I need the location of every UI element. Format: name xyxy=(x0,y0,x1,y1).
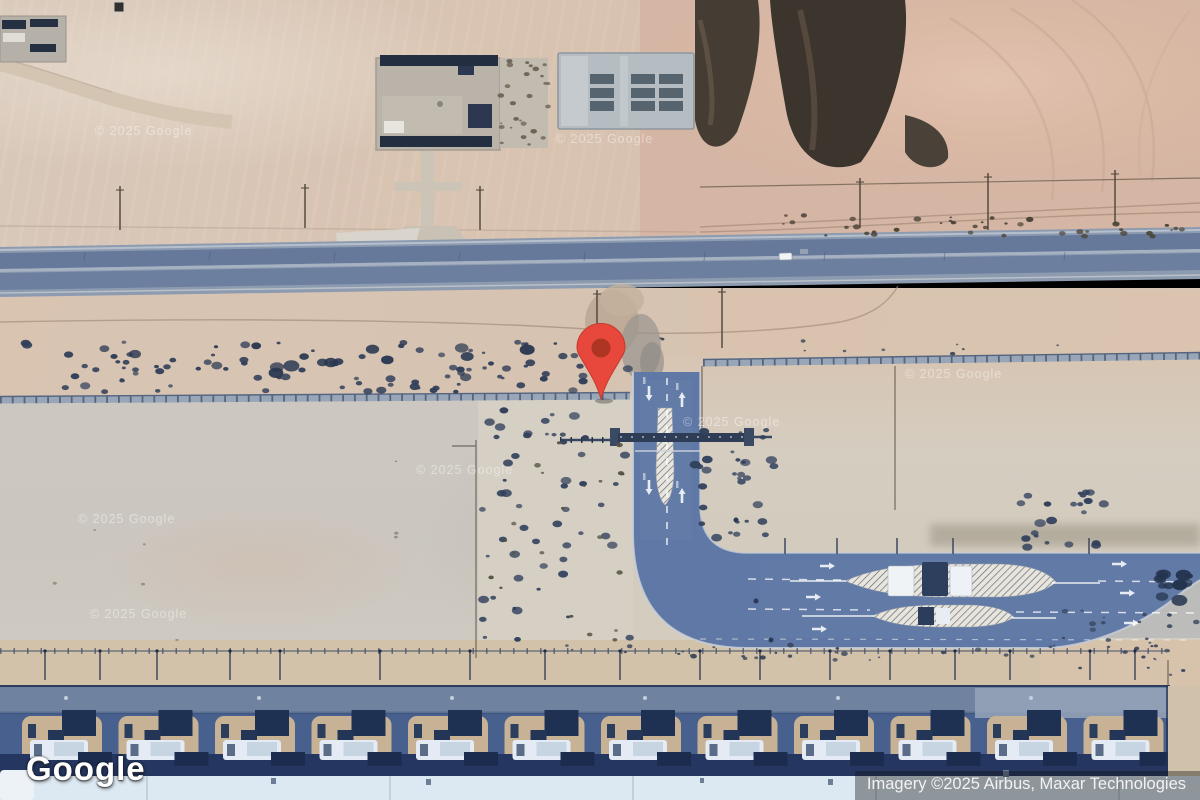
shrub xyxy=(453,390,458,394)
shrub xyxy=(1062,609,1069,614)
shrub xyxy=(545,105,551,109)
shrub xyxy=(558,353,567,359)
vehicle-dot xyxy=(754,599,759,604)
shrub xyxy=(141,583,145,586)
shrub xyxy=(1076,229,1083,234)
shrub xyxy=(53,582,57,585)
shrub xyxy=(543,82,547,85)
light-pole-head xyxy=(228,649,231,652)
highway-road xyxy=(0,227,1200,297)
dirt-grading-arcs xyxy=(950,0,1190,200)
shrub xyxy=(914,216,922,221)
road-dot xyxy=(643,696,647,700)
shrub xyxy=(214,345,218,348)
shrub xyxy=(1034,519,1045,527)
bay-post xyxy=(414,724,422,738)
shrub xyxy=(801,339,806,342)
shrub xyxy=(1145,638,1149,641)
shrub xyxy=(168,384,173,387)
shrub xyxy=(449,365,457,371)
light-pole-head xyxy=(155,649,158,652)
shrub xyxy=(975,648,981,652)
shrub xyxy=(239,357,248,363)
shrub xyxy=(728,531,733,534)
shrub xyxy=(760,655,766,659)
shrub xyxy=(394,532,398,535)
truck-cab xyxy=(227,744,235,756)
shrub xyxy=(562,542,571,548)
shrub xyxy=(398,344,404,348)
shrub xyxy=(1084,498,1093,504)
shrub xyxy=(626,635,634,641)
bay-post xyxy=(897,724,905,738)
shrub xyxy=(552,433,557,436)
shrub xyxy=(507,59,513,63)
shrub xyxy=(155,368,164,374)
light-pole-head xyxy=(828,649,831,652)
shrub xyxy=(143,543,146,545)
shrub xyxy=(509,551,520,558)
light-pole-head xyxy=(278,649,281,652)
shrub xyxy=(661,338,665,341)
shrub xyxy=(240,341,250,348)
shrub xyxy=(784,214,788,217)
shrub xyxy=(497,375,502,379)
shrub xyxy=(790,220,796,224)
shrub xyxy=(1099,500,1109,507)
shrub xyxy=(1044,501,1052,506)
shrub xyxy=(1154,575,1166,584)
shrub xyxy=(482,366,487,369)
shrub xyxy=(520,345,535,355)
shrub xyxy=(1179,227,1185,231)
shrub xyxy=(211,362,222,370)
shrub xyxy=(1165,224,1169,227)
shrub xyxy=(499,587,502,589)
google-watermark: © 2025 Google xyxy=(95,124,192,138)
shrub xyxy=(541,472,544,474)
shrub xyxy=(1077,502,1083,506)
shrub xyxy=(540,376,548,382)
shrub xyxy=(699,505,707,511)
shrub xyxy=(532,539,540,545)
shrub xyxy=(607,542,617,549)
canopy xyxy=(62,710,96,736)
shrub xyxy=(881,349,885,352)
small-structure xyxy=(114,2,124,12)
shrub xyxy=(583,485,586,487)
google-watermark: © 2025 Google xyxy=(78,512,175,526)
truck-cab xyxy=(903,744,911,756)
shrub xyxy=(1017,222,1023,226)
shrub xyxy=(196,367,201,371)
shrub xyxy=(381,356,394,365)
shrub xyxy=(484,418,495,425)
shrub xyxy=(525,61,529,64)
shrub xyxy=(1164,649,1169,653)
shrub xyxy=(277,342,281,345)
truck-shadow xyxy=(657,752,691,766)
shrub xyxy=(457,383,461,386)
truck-cab xyxy=(806,744,814,756)
shrub xyxy=(505,84,511,88)
satellite-map-viewport[interactable]: © 2025 Google© 2025 Google© 2025 Google©… xyxy=(0,0,1200,800)
shrub xyxy=(64,351,73,357)
truck-cab xyxy=(710,744,718,756)
bay-post xyxy=(125,724,133,738)
vehicle xyxy=(779,253,792,260)
shrub xyxy=(578,531,583,535)
truck-shadow xyxy=(754,752,788,766)
shrub xyxy=(552,521,562,528)
shrub xyxy=(620,452,630,459)
shrub xyxy=(561,507,565,510)
shrub xyxy=(1021,535,1030,542)
shrub xyxy=(754,656,758,659)
shrub xyxy=(154,365,159,368)
shrub xyxy=(1081,234,1088,239)
building-compound-a xyxy=(0,16,66,62)
canopy xyxy=(352,710,386,736)
shrub xyxy=(745,520,749,523)
shrub xyxy=(82,364,88,368)
shrub xyxy=(775,652,778,654)
light-pole-head xyxy=(468,649,471,652)
google-watermark: © 2025 Google xyxy=(416,463,513,477)
shrub xyxy=(1064,541,1073,547)
shrub xyxy=(520,525,529,531)
truck-cab xyxy=(1096,744,1104,756)
shrub xyxy=(445,374,451,378)
shrub xyxy=(760,435,766,440)
shrub xyxy=(80,382,90,389)
shrub xyxy=(488,361,494,365)
shrub xyxy=(317,359,328,367)
shrub xyxy=(1106,638,1112,642)
truck-cab xyxy=(999,744,1007,756)
shrub xyxy=(513,117,519,121)
shrub xyxy=(1154,644,1158,647)
shrub xyxy=(554,342,558,345)
shrub xyxy=(732,472,737,476)
shrub xyxy=(569,615,573,618)
shrub xyxy=(21,340,31,347)
shrub xyxy=(1026,217,1033,222)
shrub xyxy=(618,471,624,475)
imagery-attribution: Imagery ©2025 Airbus, Maxar Technologies xyxy=(855,771,1200,800)
canopy xyxy=(834,710,868,736)
shrub xyxy=(516,382,525,388)
shrub xyxy=(1091,542,1101,549)
truck-cab xyxy=(613,744,621,756)
truck-cab xyxy=(324,744,332,756)
shrub xyxy=(557,441,562,444)
shrub xyxy=(1141,656,1145,659)
shrub xyxy=(1082,490,1090,496)
bay-post xyxy=(318,724,326,738)
light-pole-head xyxy=(698,649,701,652)
shrub xyxy=(115,360,120,363)
shrub xyxy=(122,367,126,370)
shrub xyxy=(941,651,946,655)
lane-label-smudge xyxy=(676,481,679,488)
shrub xyxy=(541,418,550,424)
shrub xyxy=(529,64,533,67)
shrub xyxy=(698,483,707,489)
shrub xyxy=(155,389,160,393)
shrub xyxy=(871,232,878,237)
shrub xyxy=(500,122,503,124)
canopy xyxy=(545,710,579,736)
shrub xyxy=(624,651,627,653)
shrub xyxy=(488,576,493,580)
light-pole-head xyxy=(43,649,46,652)
shrub xyxy=(386,375,396,382)
shrub xyxy=(1158,583,1166,589)
shrub xyxy=(169,358,176,363)
shrub xyxy=(1004,222,1007,224)
shrub xyxy=(503,539,507,542)
shrub xyxy=(545,433,549,436)
truck-shadow xyxy=(368,752,402,766)
shrub xyxy=(844,226,849,229)
canopy xyxy=(641,710,675,736)
shrub xyxy=(1119,228,1123,231)
shrub xyxy=(841,651,848,656)
shrub xyxy=(835,651,838,653)
shrub xyxy=(1022,544,1032,551)
canopy xyxy=(1027,710,1061,736)
shrub xyxy=(1154,659,1156,661)
shrub xyxy=(366,345,379,354)
light-pole-head xyxy=(378,649,381,652)
shrub xyxy=(466,368,472,372)
shrub xyxy=(614,629,618,632)
shrub xyxy=(690,461,701,469)
shrub xyxy=(211,354,215,357)
shrub xyxy=(354,377,359,381)
shrub xyxy=(973,225,978,229)
shrub xyxy=(269,368,284,378)
shrub xyxy=(1001,234,1006,238)
shrub xyxy=(507,63,514,68)
google-watermark: © 2025 Google xyxy=(905,367,1002,381)
shrub xyxy=(1053,645,1056,647)
shrub xyxy=(949,217,952,219)
shrub xyxy=(175,639,178,641)
bay-post xyxy=(704,724,712,738)
shrub xyxy=(864,232,869,236)
shrub xyxy=(479,507,486,512)
shrub xyxy=(100,345,110,352)
shrub xyxy=(702,467,712,474)
shrub xyxy=(253,375,262,381)
shrub xyxy=(1081,510,1087,514)
shrub xyxy=(612,638,617,641)
shrub xyxy=(395,461,397,463)
shrub xyxy=(483,636,487,639)
shrub xyxy=(1103,617,1105,619)
shrub xyxy=(597,535,603,539)
shrub xyxy=(501,489,512,497)
shrub xyxy=(340,386,345,390)
shrub xyxy=(968,231,974,235)
shrub xyxy=(843,350,846,352)
shrub xyxy=(112,354,118,358)
shrub xyxy=(560,433,566,437)
truck-shadow xyxy=(464,752,498,766)
shrub xyxy=(540,75,543,77)
shrub xyxy=(123,360,130,365)
water-treatment-ponds xyxy=(558,53,694,129)
shrub xyxy=(740,459,750,466)
vehicle-dot xyxy=(769,638,774,643)
shrub xyxy=(1185,573,1193,578)
shrub xyxy=(558,571,568,578)
vegetation-patch xyxy=(695,0,948,167)
shrub xyxy=(983,226,988,229)
shrub xyxy=(163,364,171,369)
shrub xyxy=(699,428,709,435)
location-pin-icon[interactable] xyxy=(573,321,629,405)
shrub xyxy=(376,387,386,394)
shrub xyxy=(503,479,507,482)
shrub xyxy=(1120,231,1127,236)
truck-shadow xyxy=(947,752,981,766)
shrub xyxy=(956,344,959,346)
shrub xyxy=(1085,230,1089,233)
shrub xyxy=(869,659,871,661)
shrub xyxy=(601,533,611,540)
truck-shadow xyxy=(271,752,305,766)
shrub xyxy=(523,433,531,439)
shrub xyxy=(514,340,521,345)
shrub xyxy=(527,94,533,98)
shrub xyxy=(1167,624,1173,628)
shrub xyxy=(363,388,372,394)
canopy xyxy=(738,710,772,736)
shrub xyxy=(850,217,856,221)
bay-post xyxy=(511,724,519,738)
shrub xyxy=(743,657,748,660)
shrub xyxy=(1172,595,1188,606)
shrub xyxy=(770,463,779,469)
shrub xyxy=(1150,645,1153,647)
shrub xyxy=(478,596,489,604)
shrub xyxy=(512,552,515,554)
light-pole-head xyxy=(1008,649,1011,652)
shrub xyxy=(394,536,398,539)
shrub xyxy=(1156,592,1168,601)
shrub xyxy=(62,385,69,390)
shrub xyxy=(550,413,555,416)
shrub xyxy=(502,365,511,371)
shrub xyxy=(699,521,706,526)
shrub xyxy=(534,463,541,468)
shrub xyxy=(758,518,768,525)
shrub xyxy=(1172,580,1187,590)
shrub xyxy=(541,136,546,140)
truck-shadow xyxy=(175,752,209,766)
shrub xyxy=(460,373,471,381)
shrub xyxy=(1137,621,1141,624)
shrub xyxy=(613,482,619,486)
truck-shadow xyxy=(850,752,884,766)
shrub xyxy=(511,522,516,526)
shrub xyxy=(516,504,522,508)
shrub xyxy=(587,633,593,637)
shrub xyxy=(616,570,622,574)
shrub xyxy=(1181,669,1185,672)
shrub xyxy=(561,477,572,484)
shrub xyxy=(514,575,524,582)
shrub xyxy=(616,443,623,448)
shrub xyxy=(543,63,547,66)
google-logo[interactable]: Google xyxy=(26,750,146,788)
shrub xyxy=(500,142,504,145)
shrub xyxy=(824,234,827,236)
shrub xyxy=(690,654,692,656)
shrub xyxy=(1059,231,1066,236)
truck-cab xyxy=(517,744,525,756)
lane-label-smudge xyxy=(643,377,646,384)
shrub xyxy=(1080,610,1083,612)
shrub xyxy=(1070,502,1077,507)
shrub xyxy=(1045,541,1050,545)
shrub xyxy=(1167,613,1172,616)
shrub xyxy=(510,127,513,129)
shrub xyxy=(499,125,505,129)
shrub xyxy=(119,379,125,383)
road-dot xyxy=(257,696,261,700)
shrub xyxy=(495,423,506,430)
shrub xyxy=(569,412,580,420)
shrub xyxy=(93,529,96,531)
shrub xyxy=(132,367,139,372)
shrub xyxy=(251,342,261,349)
shrub xyxy=(853,224,860,229)
shrub xyxy=(559,557,567,563)
shrub xyxy=(1030,655,1035,658)
canopy xyxy=(159,710,193,736)
shrub xyxy=(878,657,881,659)
shrub xyxy=(432,386,439,391)
light-pole-head xyxy=(888,649,891,652)
shrub xyxy=(1049,646,1053,649)
shrub xyxy=(514,637,521,642)
shrub xyxy=(598,503,605,508)
shrub xyxy=(950,352,955,356)
shrub xyxy=(677,653,680,655)
shrub xyxy=(788,655,792,658)
light-pole-head xyxy=(618,649,621,652)
shrub xyxy=(981,221,984,223)
google-watermark: © 2025 Google xyxy=(683,415,780,429)
shrub xyxy=(571,649,574,651)
shrub xyxy=(511,453,520,459)
shrub xyxy=(801,213,807,217)
shrub xyxy=(311,349,315,352)
road-dot xyxy=(64,696,68,700)
shrub xyxy=(1056,344,1059,346)
lane-label-smudge xyxy=(643,473,646,480)
shrub xyxy=(498,93,505,98)
shrub xyxy=(542,371,550,377)
shrub xyxy=(1170,229,1172,231)
shrub xyxy=(804,350,806,352)
shrub xyxy=(962,348,965,350)
truck-shadow xyxy=(1043,752,1077,766)
